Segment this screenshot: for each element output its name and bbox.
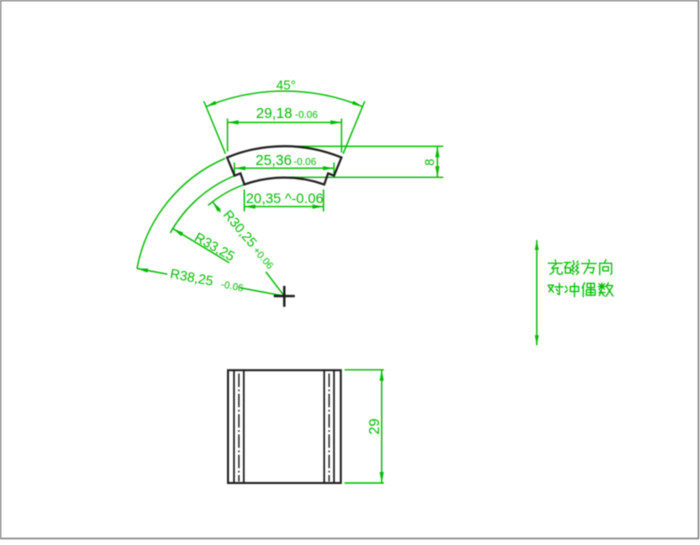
svg-text:20,35 ^-0.06: 20,35 ^-0.06 [246,190,324,206]
svg-text:-0.06: -0.06 [294,157,317,168]
svg-text:29: 29 [367,418,383,434]
svg-text:45°: 45° [276,78,296,93]
svg-text:-0.06: -0.06 [295,110,318,121]
svg-text:29,18: 29,18 [256,106,292,122]
svg-text:25,36: 25,36 [256,153,292,169]
svg-text:8: 8 [423,159,437,166]
